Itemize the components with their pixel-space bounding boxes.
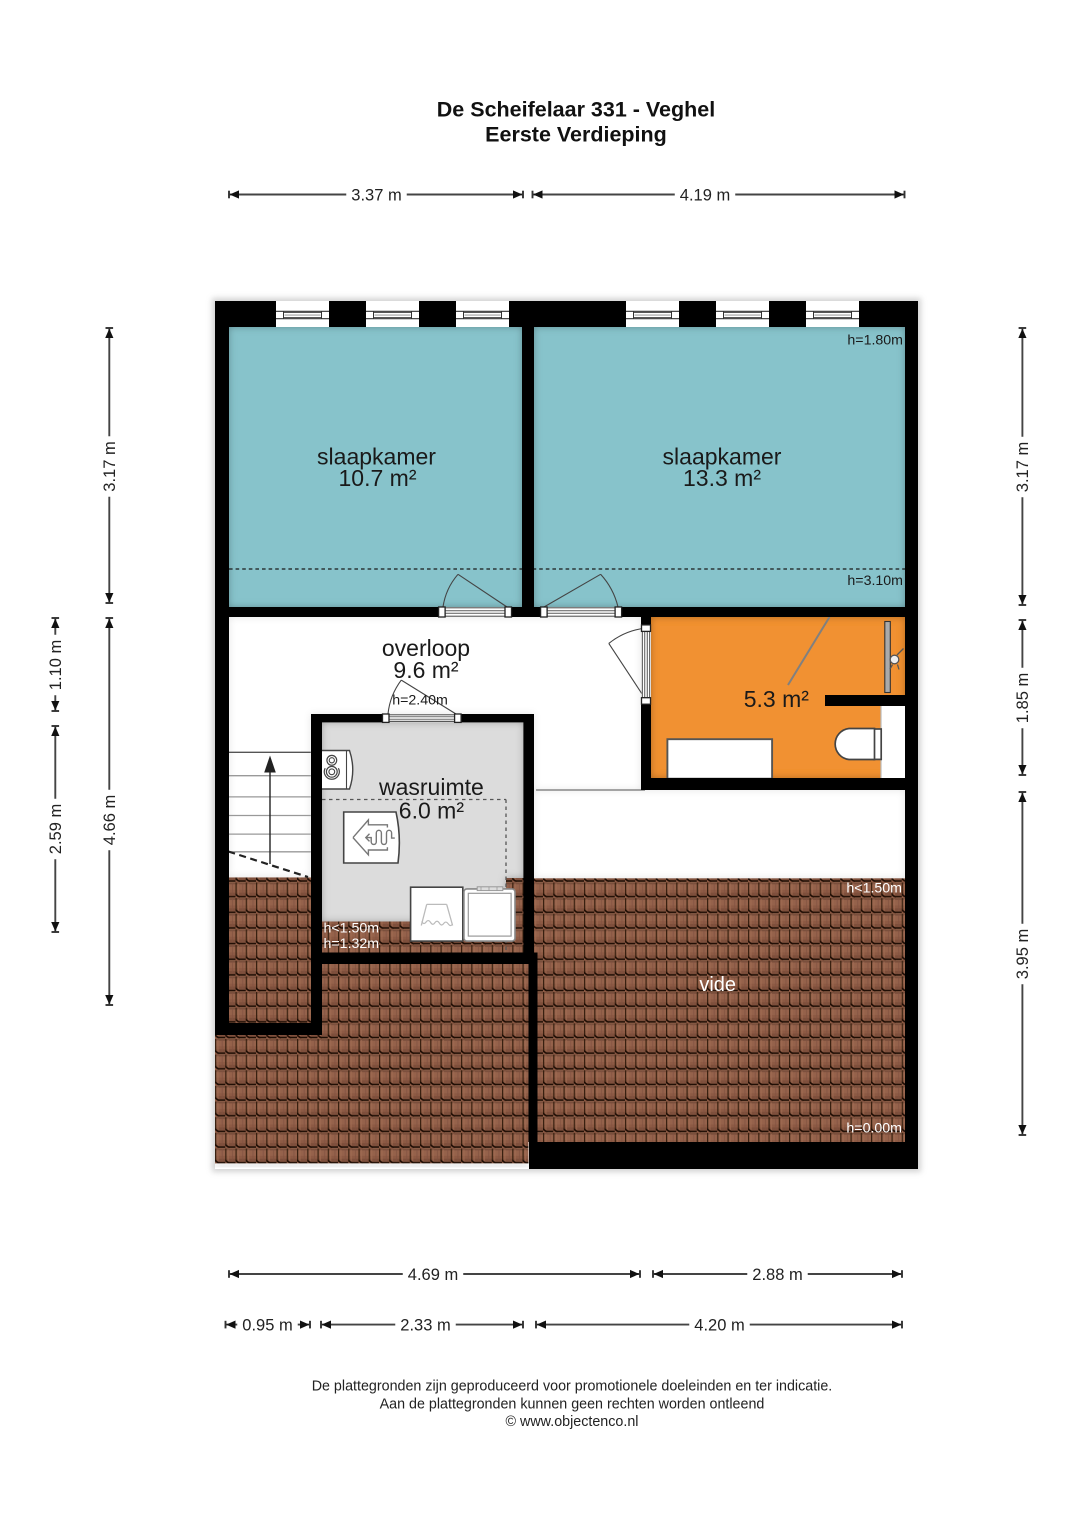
svg-text:Aan de plattegronden kunnen ge: Aan de plattegronden kunnen geen rechten… bbox=[380, 1397, 765, 1413]
svg-text:9.6 m²: 9.6 m² bbox=[393, 657, 459, 683]
svg-text:h=2.40m: h=2.40m bbox=[392, 692, 448, 708]
svg-text:4.19 m: 4.19 m bbox=[680, 186, 730, 204]
svg-text:wasruimte: wasruimte bbox=[378, 774, 484, 800]
svg-text:3.17 m: 3.17 m bbox=[101, 441, 119, 491]
svg-text:1.85 m: 1.85 m bbox=[1014, 673, 1032, 723]
svg-text:h=1.32m: h=1.32m bbox=[324, 936, 380, 952]
svg-text:© www.objectenco.nl: © www.objectenco.nl bbox=[506, 1414, 639, 1430]
svg-text:2.59 m: 2.59 m bbox=[47, 804, 65, 854]
svg-text:vide: vide bbox=[699, 974, 736, 996]
svg-text:2.88 m: 2.88 m bbox=[752, 1266, 802, 1284]
svg-text:h=0.00m: h=0.00m bbox=[846, 1121, 902, 1137]
svg-text:6.0 m²: 6.0 m² bbox=[399, 797, 465, 823]
svg-text:10.7 m²: 10.7 m² bbox=[339, 465, 417, 491]
svg-text:h=1.80m: h=1.80m bbox=[847, 333, 903, 349]
svg-text:2.33 m: 2.33 m bbox=[400, 1316, 450, 1334]
svg-text:De plattegronden zijn geproduc: De plattegronden zijn geproduceerd voor … bbox=[312, 1379, 833, 1395]
svg-text:3.37 m: 3.37 m bbox=[351, 186, 401, 204]
svg-text:1.10 m: 1.10 m bbox=[47, 640, 65, 690]
svg-text:4.69 m: 4.69 m bbox=[408, 1266, 458, 1284]
svg-text:h<1.50m: h<1.50m bbox=[324, 921, 380, 937]
svg-text:De Scheifelaar 331 - Veghel: De Scheifelaar 331 - Veghel bbox=[437, 97, 715, 121]
svg-text:h=3.10m: h=3.10m bbox=[847, 573, 903, 589]
svg-text:3.95 m: 3.95 m bbox=[1014, 929, 1032, 979]
svg-text:0.95 m: 0.95 m bbox=[242, 1316, 292, 1334]
svg-text:h<1.50m: h<1.50m bbox=[846, 881, 902, 897]
svg-text:3.17 m: 3.17 m bbox=[1014, 442, 1032, 492]
svg-text:Eerste Verdieping: Eerste Verdieping bbox=[485, 122, 667, 146]
svg-text:13.3 m²: 13.3 m² bbox=[683, 465, 761, 491]
svg-text:4.20 m: 4.20 m bbox=[694, 1316, 744, 1334]
svg-text:5.3 m²: 5.3 m² bbox=[744, 686, 810, 712]
svg-text:4.66 m: 4.66 m bbox=[101, 795, 119, 845]
